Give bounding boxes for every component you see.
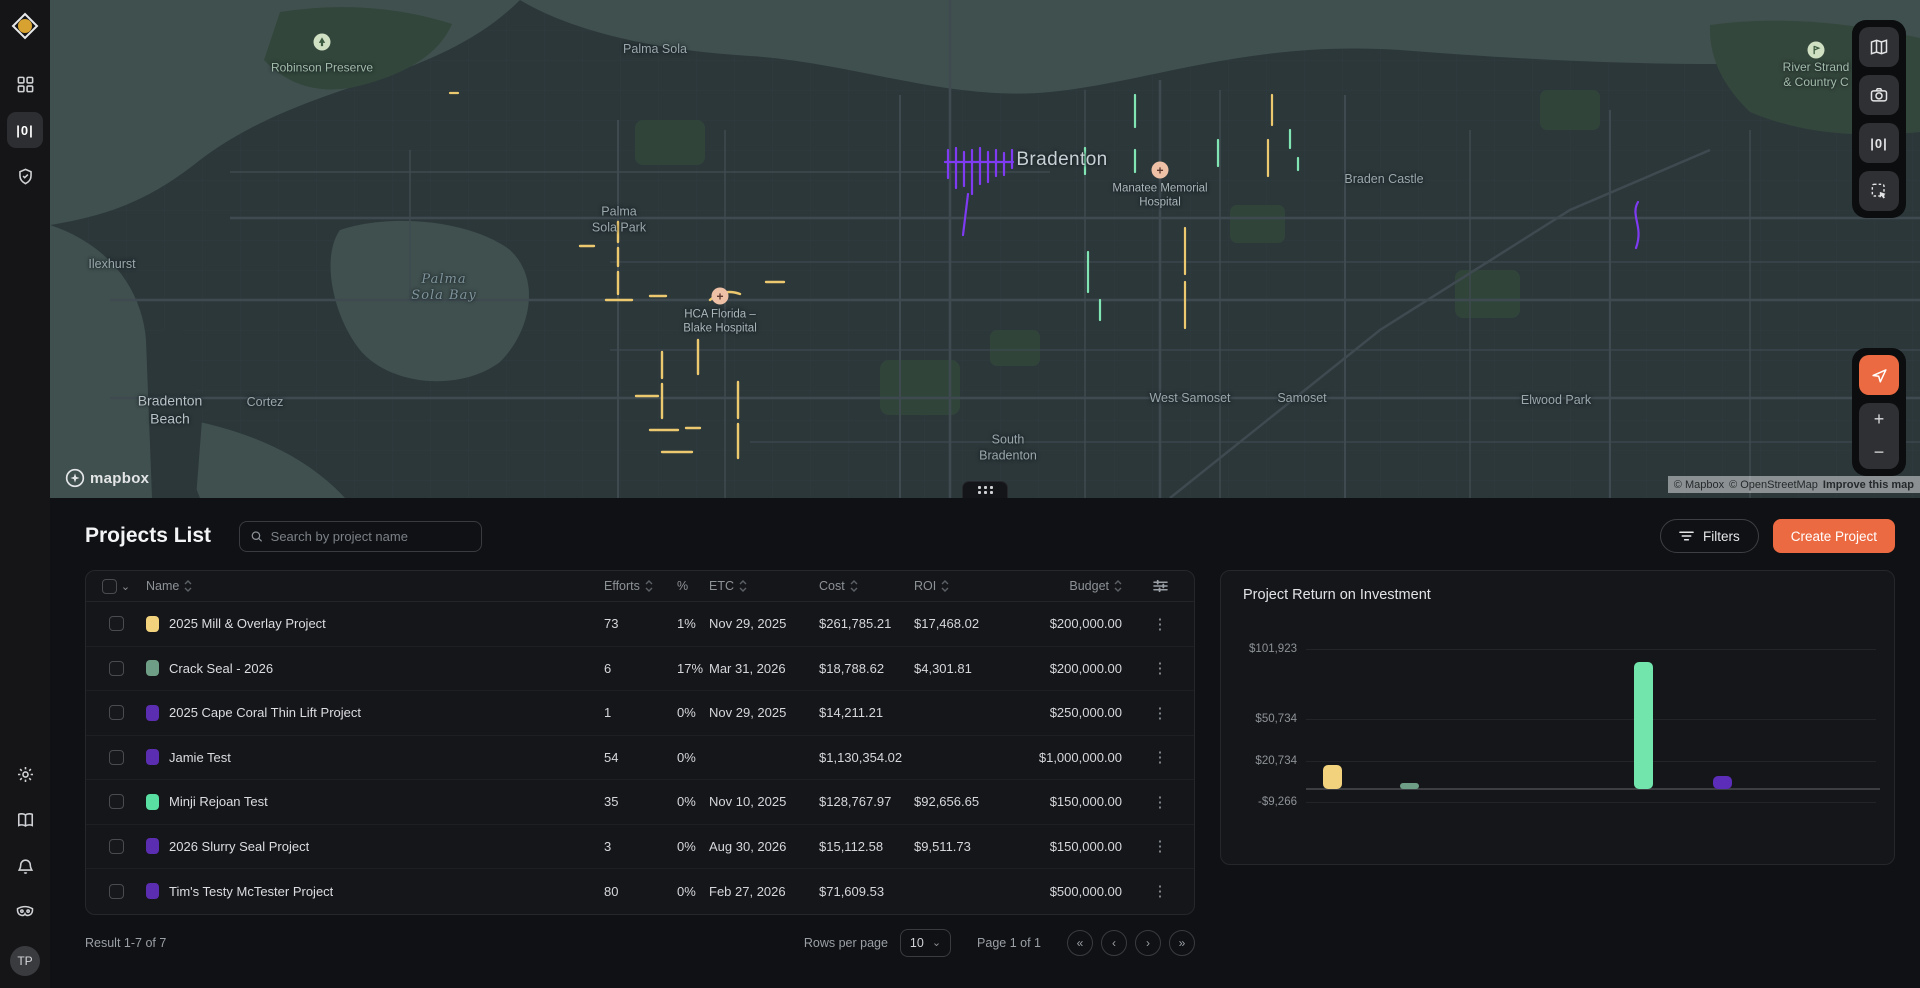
row-menu-button[interactable]: ⋮: [1126, 837, 1194, 855]
app-logo-icon[interactable]: [11, 12, 39, 40]
budget-value: $250,000.00: [1014, 705, 1126, 720]
result-count: Result 1-7 of 7: [85, 936, 166, 950]
etc-value: Feb 27, 2026: [709, 884, 819, 899]
roi-value: $9,511.73: [914, 839, 1014, 854]
sidebar-item-projects[interactable]: |0|: [7, 112, 43, 148]
project-color-swatch: [146, 794, 159, 810]
cost-value: $261,785.21: [819, 616, 914, 631]
mapbox-logo-icon: [65, 468, 85, 488]
select-area-icon: [1869, 181, 1889, 201]
app-root: |0|: [0, 0, 1920, 988]
row-checkbox[interactable]: [109, 839, 124, 854]
cost-value: $15,112.58: [819, 839, 914, 854]
cost-value: $128,767.97: [819, 794, 914, 809]
map-select-button[interactable]: [1859, 171, 1899, 211]
chevron-down-icon: ⌄: [932, 936, 941, 949]
column-settings-button[interactable]: [1126, 579, 1194, 593]
chart-baseline: [1306, 788, 1880, 790]
create-project-button[interactable]: Create Project: [1773, 519, 1895, 553]
lane-icon: |0|: [1870, 136, 1888, 151]
mask-icon: [15, 902, 35, 922]
book-icon: [16, 811, 35, 830]
chart-gridline: [1306, 649, 1876, 650]
percent-value: 0%: [677, 750, 709, 765]
roi-value: $92,656.65: [914, 794, 1014, 809]
percent-value: 17%: [677, 661, 709, 676]
mapbox-logo-text: mapbox: [90, 470, 149, 487]
sidebar-item-settings[interactable]: [7, 756, 43, 792]
sidebar-item-mask[interactable]: [7, 894, 43, 930]
percent-value: 0%: [677, 705, 709, 720]
page-title: Projects List: [85, 524, 211, 548]
project-color-swatch: [146, 883, 159, 899]
shield-check-icon: [16, 167, 35, 186]
table-header-row: ⌄ NameEfforts%ETCCostROIBudget: [86, 571, 1194, 602]
budget-value: $150,000.00: [1014, 794, 1126, 809]
table-footer: Result 1-7 of 7 Rows per page 10 ⌄ Page …: [85, 915, 1195, 971]
column-header-cost[interactable]: Cost: [819, 579, 914, 593]
efforts-value: 54: [604, 750, 677, 765]
prev-page-button[interactable]: ‹: [1101, 930, 1127, 956]
etc-value: Aug 30, 2026: [709, 839, 819, 854]
chart-gridline: [1306, 802, 1876, 803]
chart-gridline: [1306, 761, 1876, 762]
row-menu-button[interactable]: ⋮: [1126, 793, 1194, 811]
improve-map-link[interactable]: Improve this map: [1823, 479, 1914, 491]
efforts-value: 80: [604, 884, 677, 899]
chart-title: Project Return on Investment: [1243, 587, 1431, 603]
table-row[interactable]: Crack Seal - 2026 6 17% Mar 31, 2026 $18…: [86, 647, 1194, 692]
user-avatar[interactable]: TP: [10, 946, 40, 976]
sort-icon: [184, 580, 192, 592]
search-input[interactable]: [271, 529, 471, 544]
left-sidebar: |0|: [0, 0, 50, 988]
table-row[interactable]: Minji Rejoan Test 35 0% Nov 10, 2025 $12…: [86, 780, 1194, 825]
row-menu-button[interactable]: ⋮: [1126, 748, 1194, 766]
project-color-swatch: [146, 838, 159, 854]
row-checkbox[interactable]: [109, 750, 124, 765]
etc-value: Nov 29, 2025: [709, 705, 819, 720]
project-name: 2025 Mill & Overlay Project: [169, 616, 326, 631]
project-color-swatch: [146, 660, 159, 676]
budget-value: $500,000.00: [1014, 884, 1126, 899]
table-row[interactable]: 2025 Mill & Overlay Project 73 1% Nov 29…: [86, 602, 1194, 647]
main-area: Robinson PreservePalma SolaBradenton+Man…: [50, 0, 1920, 988]
efforts-value: 3: [604, 839, 677, 854]
row-checkbox[interactable]: [109, 616, 124, 631]
panel-header: Projects List Filters Create Project: [85, 514, 1895, 558]
row-menu-button[interactable]: ⋮: [1126, 704, 1194, 722]
cost-value: $14,211.21: [819, 705, 914, 720]
projects-panel: Projects List Filters Create Project: [50, 498, 1920, 988]
percent-value: 0%: [677, 884, 709, 899]
last-page-button[interactable]: »: [1169, 930, 1195, 956]
etc-value: Mar 31, 2026: [709, 661, 819, 676]
gear-icon: [16, 765, 35, 784]
project-color-swatch: [146, 749, 159, 765]
cost-value: $1,130,354.02: [819, 750, 914, 765]
projects-table: ⌄ NameEfforts%ETCCostROIBudget 2025 Mill…: [85, 570, 1195, 915]
sort-icon: [739, 580, 747, 592]
sidebar-item-compliance[interactable]: [7, 158, 43, 194]
project-name: 2026 Slurry Seal Project: [169, 839, 309, 854]
attribution-osm[interactable]: © OpenStreetMap: [1729, 479, 1818, 491]
select-all-checkbox[interactable]: [102, 579, 117, 594]
map-base-layer: [50, 0, 1920, 498]
sidebar-item-notifications[interactable]: [7, 848, 43, 884]
project-name: Crack Seal - 2026: [169, 661, 273, 676]
cost-value: $18,788.62: [819, 661, 914, 676]
project-color-swatch: [146, 705, 159, 721]
efforts-value: 6: [604, 661, 677, 676]
percent-value: 1%: [677, 616, 709, 631]
sort-icon: [645, 580, 653, 592]
table-row[interactable]: 2026 Slurry Seal Project 3 0% Aug 30, 20…: [86, 825, 1194, 870]
cost-value: $71,609.53: [819, 884, 914, 899]
roi-chart-card: Project Return on Investment $101,923$50…: [1220, 570, 1895, 865]
zoom-in-button[interactable]: +: [1859, 403, 1899, 436]
budget-value: $200,000.00: [1014, 616, 1126, 631]
rows-per-page-label: Rows per page: [804, 936, 888, 950]
row-checkbox[interactable]: [109, 661, 124, 676]
efforts-value: 35: [604, 794, 677, 809]
pagination: «‹›»: [1067, 930, 1195, 956]
efforts-value: 73: [604, 616, 677, 631]
column-header-roi[interactable]: ROI: [914, 579, 1014, 593]
budget-value: $150,000.00: [1014, 839, 1126, 854]
map-screenshot-button[interactable]: [1859, 75, 1899, 115]
etc-value: Nov 10, 2025: [709, 794, 819, 809]
roi-bar[interactable]: [1713, 776, 1732, 789]
project-name: Tim's Testy McTester Project: [169, 884, 333, 899]
rows-per-page-value: 10: [910, 936, 924, 950]
row-checkbox[interactable]: [109, 884, 124, 899]
sidebar-item-docs[interactable]: [7, 802, 43, 838]
project-search[interactable]: [239, 521, 482, 552]
table-body: 2025 Mill & Overlay Project 73 1% Nov 29…: [86, 602, 1194, 914]
map-lane-button[interactable]: |0|: [1859, 123, 1899, 163]
etc-value: Nov 29, 2025: [709, 616, 819, 631]
column-header-name[interactable]: Name: [146, 579, 604, 593]
y-axis-tick-label: $20,734: [1227, 755, 1297, 767]
search-icon: [250, 529, 264, 544]
bell-icon: [16, 857, 35, 876]
roi-bar[interactable]: [1323, 765, 1342, 789]
filter-icon: [1679, 530, 1694, 542]
sort-icon: [941, 580, 949, 592]
table-row[interactable]: Jamie Test 54 0% $1,130,354.02 $1,000,00…: [86, 736, 1194, 781]
map-icon: [1869, 37, 1889, 57]
table-row[interactable]: Tim's Testy McTester Project 80 0% Feb 2…: [86, 869, 1194, 914]
zoom-controls: + −: [1859, 403, 1899, 469]
rows-per-page-select[interactable]: 10 ⌄: [900, 929, 951, 957]
table-row[interactable]: 2025 Cape Coral Thin Lift Project 1 0% N…: [86, 691, 1194, 736]
roi-value: $17,468.02: [914, 616, 1014, 631]
sort-icon: [850, 580, 858, 592]
row-menu-button[interactable]: ⋮: [1126, 659, 1194, 677]
column-header-etc[interactable]: ETC: [709, 579, 819, 593]
map-locate-button[interactable]: [1859, 355, 1899, 395]
efforts-value: 1: [604, 705, 677, 720]
row-checkbox[interactable]: [109, 705, 124, 720]
sidebar-item-dashboard[interactable]: [7, 66, 43, 102]
project-name: Minji Rejoan Test: [169, 794, 268, 809]
camera-icon: [1869, 85, 1889, 105]
map-attribution: © Mapbox © OpenStreetMap Improve this ma…: [1668, 476, 1920, 493]
filters-label: Filters: [1703, 529, 1740, 544]
column-header-budget[interactable]: Budget: [1014, 579, 1126, 593]
row-menu-button[interactable]: ⋮: [1126, 882, 1194, 900]
map-canvas[interactable]: Robinson PreservePalma SolaBradenton+Man…: [50, 0, 1920, 498]
filters-button[interactable]: Filters: [1660, 519, 1759, 553]
map-nav-stack: + −: [1852, 348, 1906, 476]
select-menu-chevron-icon[interactable]: ⌄: [121, 580, 130, 593]
roi-bar[interactable]: [1400, 783, 1419, 789]
zoom-out-button[interactable]: −: [1859, 436, 1899, 469]
map-tool-stack: |0|: [1852, 20, 1906, 218]
attribution-mapbox[interactable]: © Mapbox: [1674, 479, 1724, 491]
project-color-swatch: [146, 616, 159, 632]
column-header-: %: [677, 579, 709, 593]
y-axis-tick-label: $50,734: [1227, 713, 1297, 725]
project-name: Jamie Test: [169, 750, 231, 765]
y-axis-tick-label: $101,923: [1227, 643, 1297, 655]
row-checkbox[interactable]: [109, 794, 124, 809]
column-header-efforts[interactable]: Efforts: [604, 579, 677, 593]
y-axis-tick-label: -$9,266: [1227, 796, 1297, 808]
percent-value: 0%: [677, 839, 709, 854]
row-menu-button[interactable]: ⋮: [1126, 615, 1194, 633]
lane-icon: |0|: [16, 123, 34, 138]
percent-value: 0%: [677, 794, 709, 809]
mapbox-logo[interactable]: mapbox: [65, 468, 149, 488]
roi-bar[interactable]: [1634, 662, 1653, 789]
navigation-arrow-icon: [1870, 366, 1889, 385]
budget-value: $1,000,000.00: [1014, 750, 1126, 765]
budget-value: $200,000.00: [1014, 661, 1126, 676]
first-page-button[interactable]: «: [1067, 930, 1093, 956]
next-page-button[interactable]: ›: [1135, 930, 1161, 956]
column-settings-icon: [1153, 579, 1168, 593]
sort-icon: [1114, 580, 1122, 592]
chart-gridline: [1306, 719, 1876, 720]
panel-resize-handle[interactable]: [962, 481, 1008, 498]
page-indicator: Page 1 of 1: [977, 936, 1041, 950]
roi-value: $4,301.81: [914, 661, 1014, 676]
map-layers-button[interactable]: [1859, 27, 1899, 67]
project-name: 2025 Cape Coral Thin Lift Project: [169, 705, 361, 720]
dashboard-icon: [16, 75, 35, 94]
